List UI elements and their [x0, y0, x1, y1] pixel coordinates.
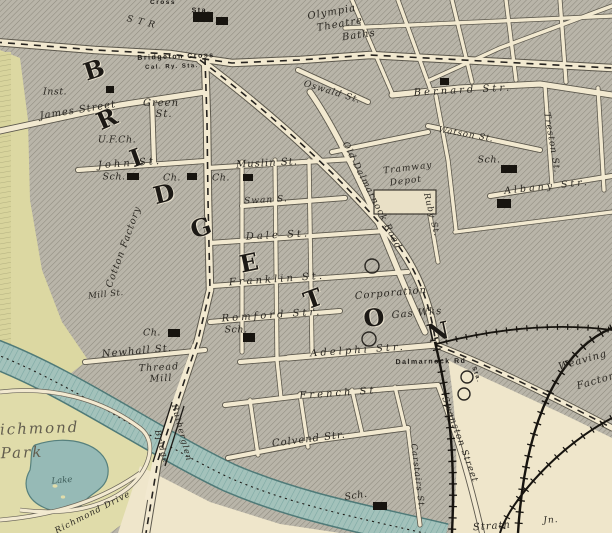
tramway-depot-building	[374, 190, 436, 214]
map-canvas[interactable]: CrossSta.OlympiaTheatreBathsS T RBridget…	[0, 0, 612, 533]
map-base	[0, 0, 612, 533]
park-strip-hedge	[0, 52, 11, 354]
